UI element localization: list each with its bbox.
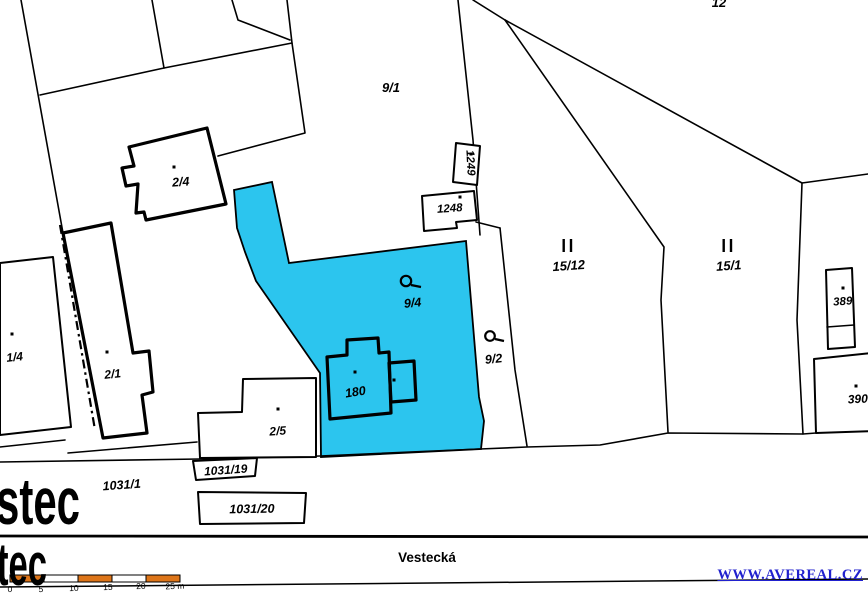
parcel-label-9-1: 9/1 — [382, 80, 400, 95]
parcel-label-9-2: 9/2 — [484, 351, 503, 367]
cadastral-map-viewport: 9/1122/41249124815/1215/13893901/42/19/4… — [0, 0, 868, 600]
scale-tick-0: 0 — [7, 584, 12, 594]
parcel-label-1031-1: 1031/1 — [102, 477, 141, 494]
parcel-label-9-4: 9/4 — [403, 295, 422, 311]
street-name-label: Vestecká — [398, 550, 456, 565]
scale-tick-10: 10 — [69, 583, 79, 593]
parcel-label-1-4: 1/4 — [6, 349, 24, 365]
parcel-label-2-1: 2/1 — [103, 366, 122, 382]
parcel-label-2-4: 2/4 — [171, 174, 190, 189]
parcel-label-1249: 1249 — [463, 150, 476, 177]
scale-tick-25m: 25 m — [165, 581, 184, 592]
scale-tick-5: 5 — [38, 584, 43, 594]
parcel-label-15-12: 15/12 — [552, 257, 586, 274]
town-name-top: stec — [0, 464, 80, 538]
parcel-label-1031-20: 1031/20 — [229, 502, 274, 517]
parcel-label-1248: 1248 — [437, 202, 464, 216]
parcel-label-12: 12 — [712, 0, 727, 10]
street-north-edge — [0, 536, 868, 537]
parcel-label-389: 389 — [833, 295, 854, 308]
parcel-label-2-5: 2/5 — [268, 423, 287, 438]
watermark-link[interactable]: WWW.AVEREAL.CZ — [717, 567, 863, 584]
scale-tick-20: 20 — [136, 581, 146, 591]
building-389 — [826, 268, 855, 349]
map-canvas: 9/1122/41249124815/1215/13893901/42/19/4… — [0, 0, 868, 600]
parcel-label-15-1: 15/1 — [716, 257, 742, 274]
scale-tick-15: 15 — [103, 582, 113, 592]
parcel-label-390: 390 — [847, 391, 868, 406]
